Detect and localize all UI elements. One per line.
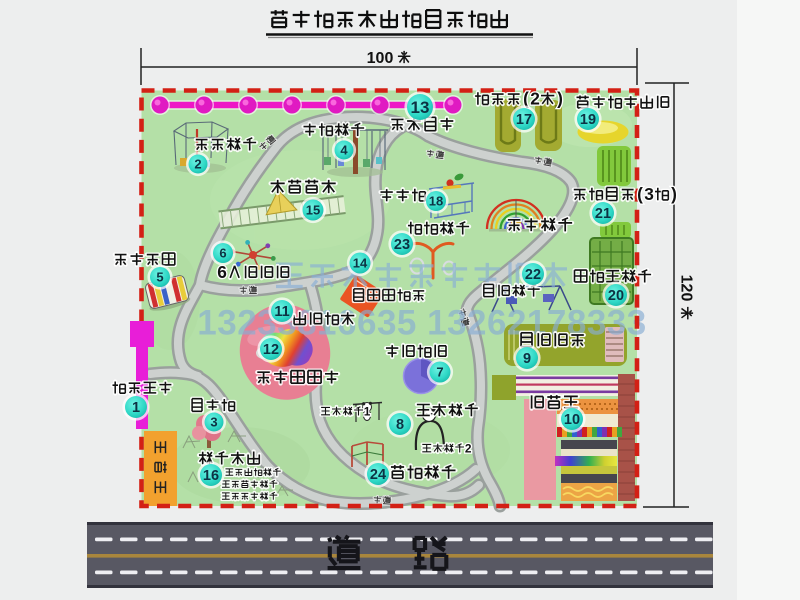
svg-text:1: 1 xyxy=(132,400,140,416)
svg-text:23: 23 xyxy=(394,237,410,253)
svg-text:): ) xyxy=(557,89,563,109)
svg-text:9: 9 xyxy=(523,351,531,367)
svg-text:15: 15 xyxy=(306,203,320,218)
svg-text:8: 8 xyxy=(396,417,404,433)
svg-text:(: ( xyxy=(637,184,643,204)
svg-text:1: 1 xyxy=(364,404,371,418)
svg-text:2: 2 xyxy=(465,441,472,455)
svg-text:24: 24 xyxy=(370,467,386,483)
svg-text:13: 13 xyxy=(411,98,430,117)
svg-text:12: 12 xyxy=(263,342,279,358)
svg-text:2: 2 xyxy=(194,157,201,172)
svg-text:18: 18 xyxy=(429,194,443,209)
svg-text:20: 20 xyxy=(608,288,624,304)
svg-text:120: 120 xyxy=(677,275,694,302)
svg-text:14: 14 xyxy=(353,256,368,271)
svg-text:4: 4 xyxy=(340,143,348,158)
svg-text:21: 21 xyxy=(595,206,611,222)
svg-text:100: 100 xyxy=(367,50,394,67)
svg-text:6: 6 xyxy=(219,246,226,261)
svg-text:7: 7 xyxy=(436,365,443,380)
svg-text:5: 5 xyxy=(156,270,163,285)
svg-text:2: 2 xyxy=(530,89,540,109)
svg-text:3: 3 xyxy=(644,184,654,204)
svg-text:): ) xyxy=(671,184,677,204)
svg-text:19: 19 xyxy=(580,112,596,128)
svg-text:17: 17 xyxy=(516,112,532,128)
svg-text:16: 16 xyxy=(203,468,219,484)
svg-text:11: 11 xyxy=(274,304,289,320)
svg-text:10: 10 xyxy=(564,412,580,428)
svg-text:3: 3 xyxy=(210,415,217,430)
svg-text:22: 22 xyxy=(525,267,541,283)
